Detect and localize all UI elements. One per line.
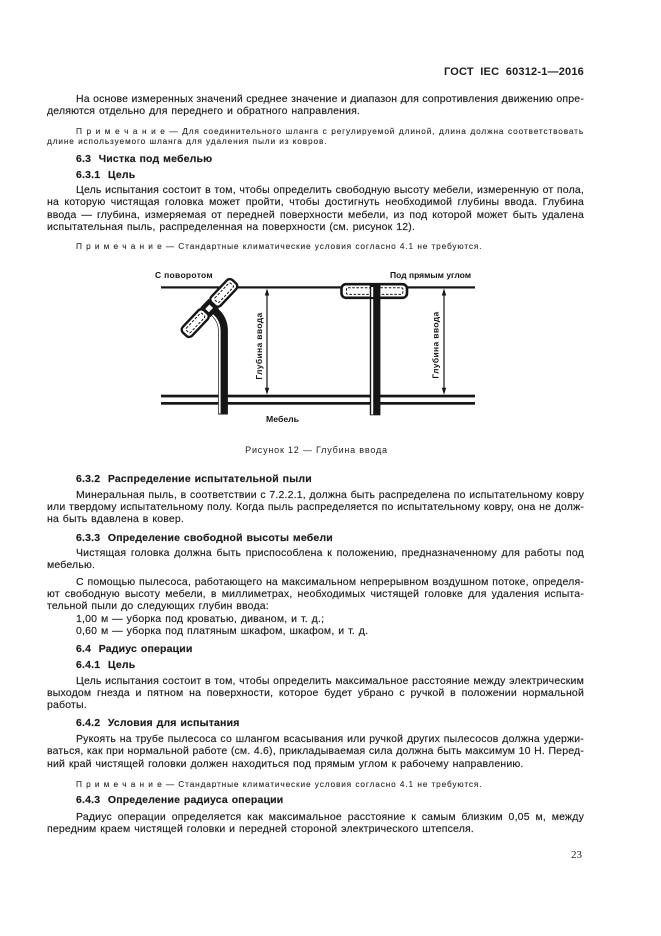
svg-text:Глубина ввода: Глубина ввода: [431, 311, 441, 378]
svg-text:Глубина ввода: Глубина ввода: [254, 312, 264, 379]
